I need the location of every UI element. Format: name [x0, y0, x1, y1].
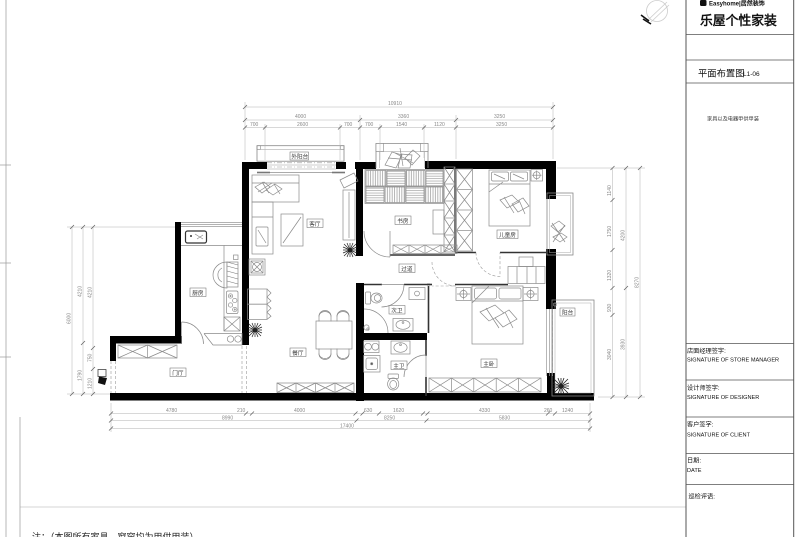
svg-text:主卧: 主卧 [483, 360, 495, 368]
svg-text:1540: 1540 [396, 122, 407, 128]
svg-text:SIGNATURE OF CLIENT: SIGNATURE OF CLIENT [687, 433, 751, 439]
svg-text:3250: 3250 [496, 122, 507, 128]
svg-text:门厅: 门厅 [172, 369, 184, 377]
svg-text:700: 700 [365, 122, 374, 128]
svg-text:8250: 8250 [384, 416, 395, 422]
svg-text:儿童房: 儿童房 [499, 231, 516, 239]
svg-text:DATE: DATE [687, 468, 702, 474]
svg-text:4780: 4780 [166, 408, 177, 414]
svg-text:930: 930 [607, 303, 613, 312]
svg-text:设计师签字:: 设计师签字: [687, 384, 720, 392]
svg-text:1320: 1320 [607, 270, 613, 281]
svg-text:4210: 4210 [88, 287, 94, 298]
svg-text:4330: 4330 [479, 408, 490, 414]
svg-text:家具以及电器甲供甲装: 家具以及电器甲供甲装 [707, 115, 759, 123]
svg-text:客厅: 客厅 [309, 220, 321, 228]
svg-text:3360: 3360 [398, 114, 409, 120]
svg-text:1140: 1140 [607, 185, 613, 196]
svg-text:外阳台: 外阳台 [291, 153, 308, 161]
svg-text:过道: 过道 [401, 265, 413, 273]
svg-text:4000: 4000 [294, 408, 305, 414]
svg-text:6000: 6000 [67, 313, 73, 324]
svg-text:L1-06: L1-06 [743, 71, 760, 78]
svg-text:主卫: 主卫 [393, 362, 405, 370]
svg-text:700: 700 [250, 122, 259, 128]
svg-text:3930: 3930 [621, 339, 627, 350]
svg-text:8990: 8990 [222, 416, 233, 422]
svg-text:平面布置图: 平面布置图 [698, 68, 745, 79]
svg-text:630: 630 [364, 408, 373, 414]
svg-text:750: 750 [88, 353, 94, 362]
svg-text:Easyhome|居然装饰: Easyhome|居然装饰 [709, 0, 765, 8]
svg-text:700: 700 [344, 122, 353, 128]
svg-text:乐屋个性家装: 乐屋个性家装 [700, 13, 777, 28]
svg-text:1120: 1120 [434, 122, 445, 128]
svg-text:10910: 10910 [388, 101, 402, 107]
svg-text:巡检评语:: 巡检评语: [689, 493, 716, 501]
svg-text:4210: 4210 [78, 286, 84, 297]
svg-text:210: 210 [237, 408, 246, 414]
svg-text:阳台: 阳台 [562, 309, 574, 317]
svg-text:SIGNATURE OF DESIGNER: SIGNATURE OF DESIGNER [687, 395, 759, 401]
svg-text:5830: 5830 [499, 416, 510, 422]
svg-text:次卫: 次卫 [391, 306, 403, 314]
svg-text:2600: 2600 [297, 122, 308, 128]
svg-text:书房: 书房 [397, 217, 409, 225]
svg-text:厨房: 厨房 [192, 289, 204, 297]
svg-text:客户签字:: 客户签字: [687, 421, 714, 429]
svg-text:餐厅: 餐厅 [292, 349, 304, 357]
svg-text:260: 260 [544, 408, 553, 414]
svg-text:4200: 4200 [621, 230, 627, 241]
svg-text:1210: 1210 [88, 378, 94, 389]
svg-text:3250: 3250 [494, 114, 505, 120]
svg-text:17400: 17400 [340, 424, 354, 430]
svg-text:1620: 1620 [393, 408, 404, 414]
svg-text:1790: 1790 [78, 370, 84, 381]
svg-text:3040: 3040 [607, 349, 613, 360]
svg-text:1750: 1750 [607, 226, 613, 237]
svg-text:8270: 8270 [635, 277, 641, 288]
svg-text:日期:: 日期: [687, 457, 701, 465]
svg-text:店面经理签字:: 店面经理签字: [687, 347, 726, 355]
svg-text:SIGNATURE OF STORE MANAGER: SIGNATURE OF STORE MANAGER [687, 358, 779, 364]
svg-text:4000: 4000 [295, 114, 306, 120]
svg-text:1240: 1240 [562, 408, 573, 414]
svg-text:注：（本图所有家具，窗帘均为甲供甲装）: 注：（本图所有家具，窗帘均为甲供甲装） [32, 531, 199, 537]
